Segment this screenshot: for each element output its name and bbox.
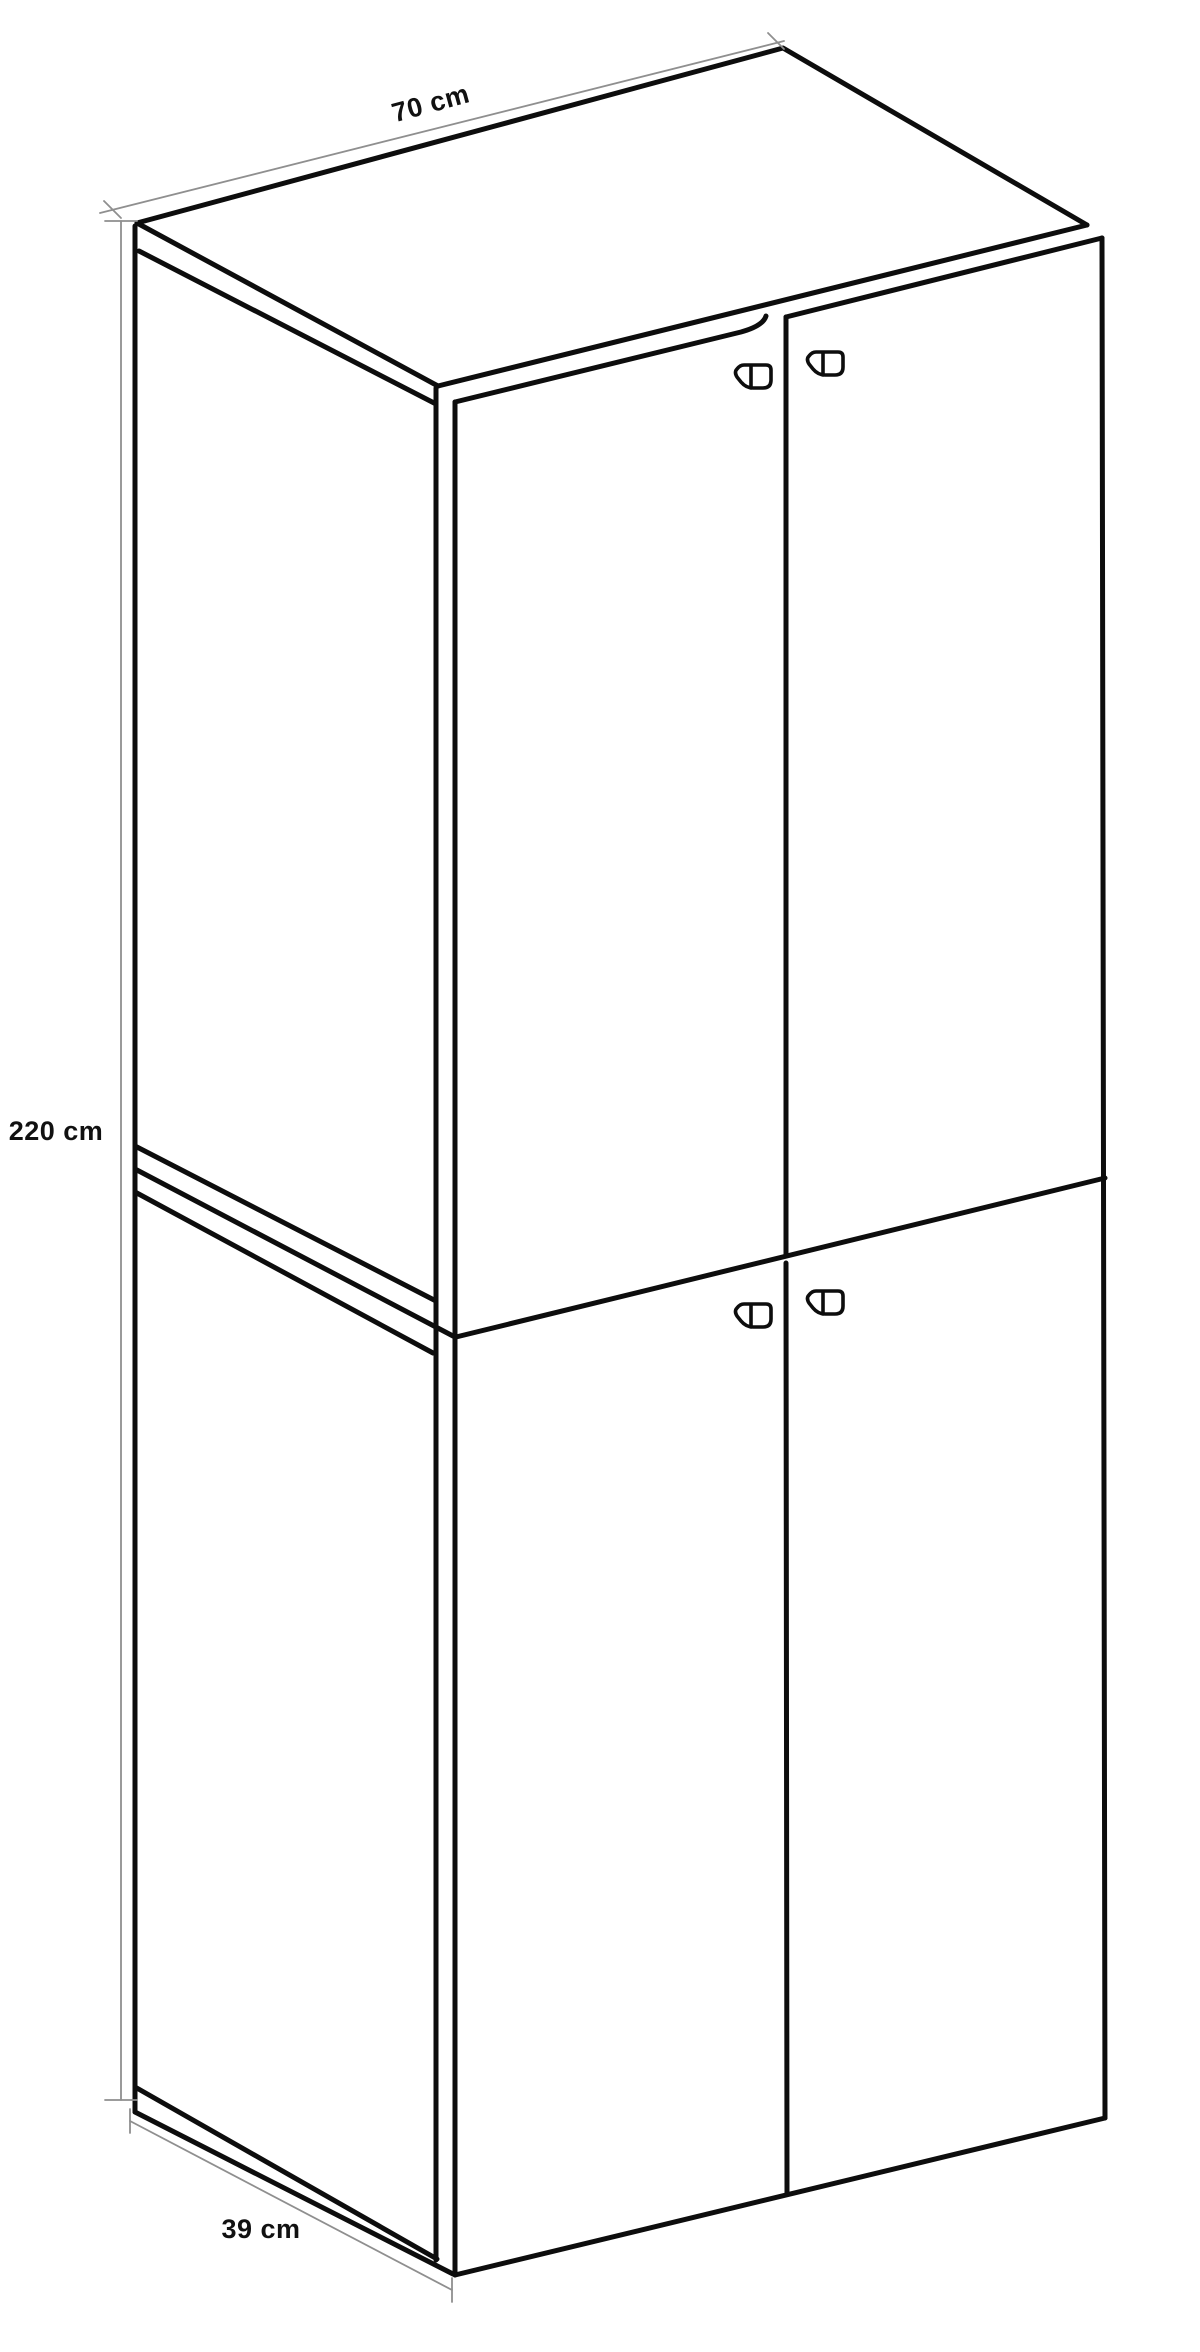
lower-door-gap: [786, 1263, 787, 2193]
cabinet-dimension-diagram: 70 cm 220 cm 39 cm: [0, 0, 1200, 2352]
bottom-left-door-handle-icon: [736, 1304, 772, 1327]
cabinet-outline: [135, 48, 1105, 2275]
side-panel-mid-edge-2: [135, 1169, 453, 1336]
depth-dimension-line: [130, 2121, 452, 2290]
dimension-lines: [100, 33, 784, 2302]
side-panel-mid-edge-1: [135, 1146, 436, 1301]
door-handles: [736, 352, 844, 1327]
side-panel-top-edge: [139, 251, 436, 404]
top-face-back-edges: [137, 48, 1087, 225]
top-face-front-right-edge: [438, 225, 1087, 386]
side-panel-mid-edge-3: [135, 1192, 433, 1353]
height-dimension-label: 220 cm: [9, 1116, 104, 1146]
bottom-right-door-handle-icon: [808, 1291, 844, 1314]
side-panel-bottom-edge-2: [135, 2112, 453, 2274]
front-bottom-edge: [455, 2118, 1105, 2275]
depth-dimension-label: 39 cm: [221, 2214, 300, 2244]
top-right-door-handle-icon: [808, 352, 844, 375]
top-right-door-top-edge: [786, 238, 1102, 317]
top-left-door-handle-icon: [736, 365, 772, 388]
top-left-door-top-edge: [455, 316, 766, 402]
width-dimension-line: [100, 41, 784, 213]
width-dimension-label: 70 cm: [389, 78, 473, 128]
width-dimension-tick-left: [104, 201, 121, 218]
top-face-front-left-edge: [137, 223, 438, 386]
diagram-canvas: 70 cm 220 cm 39 cm: [0, 0, 1200, 2352]
module-divider-edge: [456, 1178, 1105, 1337]
dimension-labels: 70 cm 220 cm 39 cm: [9, 78, 473, 2244]
